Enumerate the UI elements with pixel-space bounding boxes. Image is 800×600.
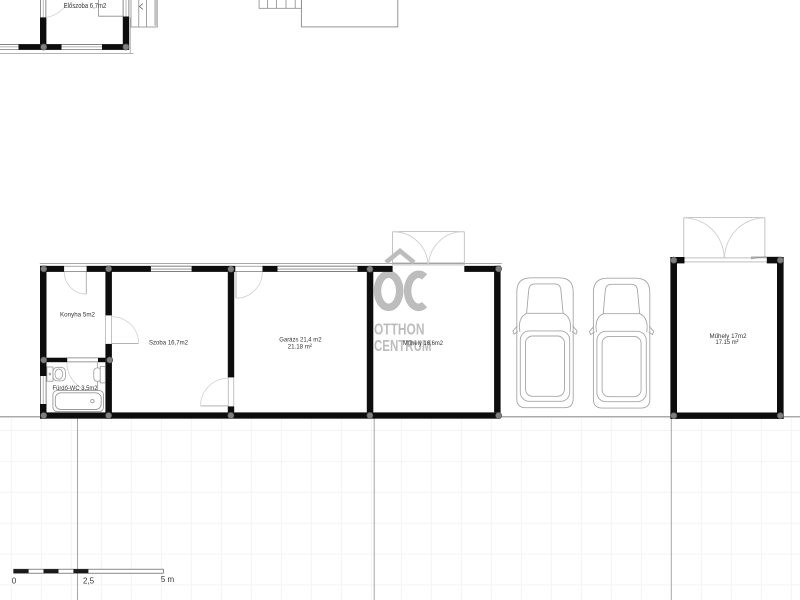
- svg-text:2,5: 2,5: [83, 577, 95, 586]
- svg-text:Konyha 5m2: Konyha 5m2: [60, 312, 95, 319]
- svg-text:0: 0: [12, 577, 17, 586]
- svg-text:OTTHON: OTTHON: [374, 321, 425, 338]
- svg-text:21.18 m²: 21.18 m²: [288, 343, 313, 350]
- svg-text:17.15 m²: 17.15 m²: [716, 339, 740, 346]
- svg-text:5 m: 5 m: [161, 575, 175, 584]
- svg-text:Szoba 16,7m2: Szoba 16,7m2: [149, 340, 188, 347]
- svg-text:Fürdő-WC 3,5m2: Fürdő-WC 3,5m2: [53, 385, 98, 392]
- svg-text:Előszoba 6,7m2: Előszoba 6,7m2: [64, 3, 107, 10]
- svg-text:Műhely 16,6m2: Műhely 16,6m2: [403, 340, 443, 347]
